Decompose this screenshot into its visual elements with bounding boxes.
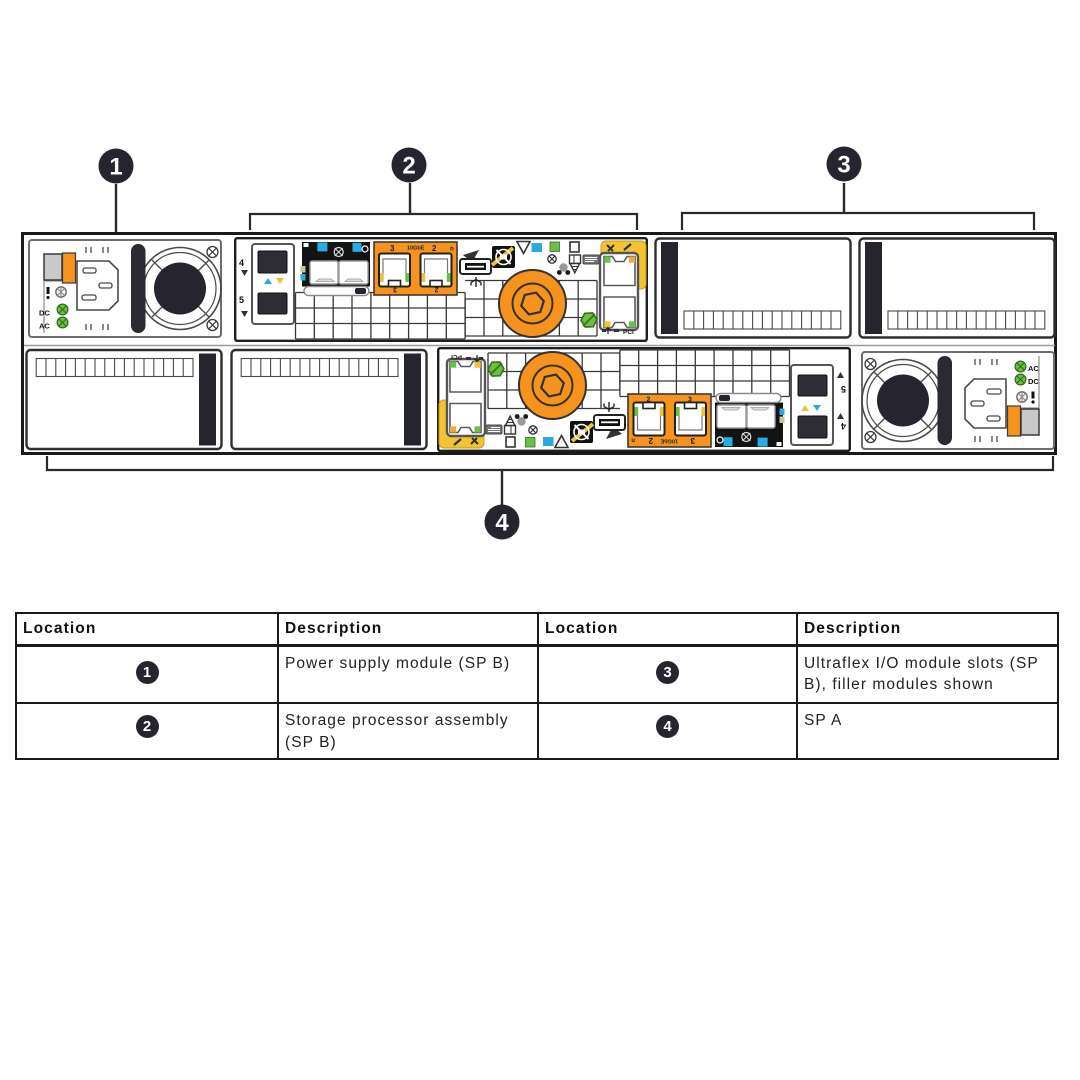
svg-text:DC: DC [39,309,50,318]
svg-text:3: 3 [837,152,850,179]
svg-text:2: 2 [402,153,415,180]
svg-text:4: 4 [495,510,509,537]
svg-text:AC: AC [1028,364,1039,373]
svg-text:1: 1 [109,154,122,181]
svg-text:AC: AC [39,322,50,331]
svg-text:DC: DC [1028,377,1039,386]
